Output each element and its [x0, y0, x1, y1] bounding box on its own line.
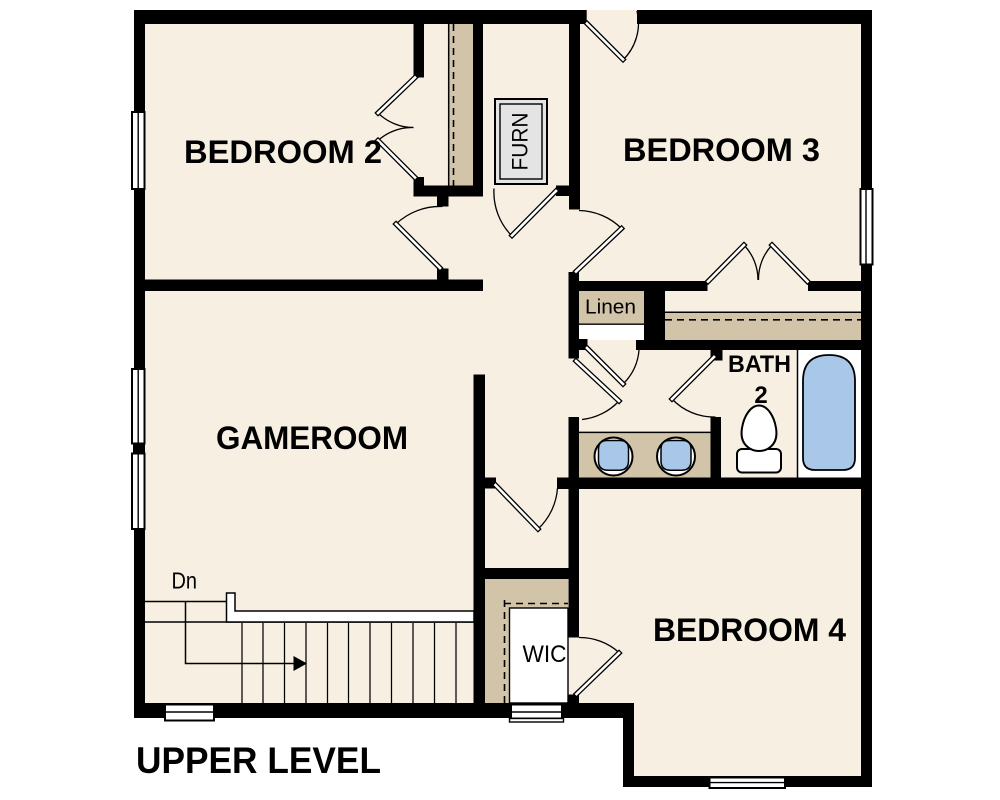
svg-text:Linen: Linen: [585, 296, 636, 319]
svg-text:BEDROOM 4: BEDROOM 4: [653, 612, 846, 648]
svg-text:Dn: Dn: [172, 568, 198, 594]
svg-text:GAMEROOM: GAMEROOM: [216, 420, 408, 456]
svg-text:BATH: BATH: [728, 351, 791, 378]
svg-text:2: 2: [754, 382, 767, 409]
svg-text:WIC: WIC: [523, 641, 567, 668]
svg-text:FURN: FURN: [508, 113, 533, 171]
svg-text:BEDROOM 2: BEDROOM 2: [184, 134, 382, 170]
svg-text:BEDROOM 3: BEDROOM 3: [623, 132, 820, 168]
svg-text:UPPER LEVEL: UPPER LEVEL: [136, 740, 381, 781]
